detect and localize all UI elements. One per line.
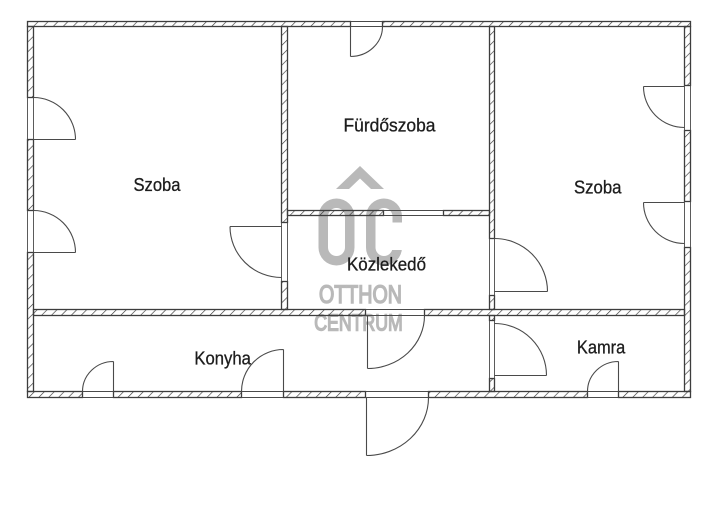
- svg-text:Konyha: Konyha: [194, 349, 251, 370]
- svg-text:OTTHON: OTTHON: [319, 282, 402, 309]
- svg-text:Szoba: Szoba: [574, 178, 622, 199]
- svg-text:Szoba: Szoba: [134, 175, 181, 196]
- svg-text:Fürdőszoba: Fürdőszoba: [344, 116, 436, 137]
- svg-text:Közlekedő: Közlekedő: [347, 255, 426, 276]
- svg-text:Kamra: Kamra: [577, 338, 626, 359]
